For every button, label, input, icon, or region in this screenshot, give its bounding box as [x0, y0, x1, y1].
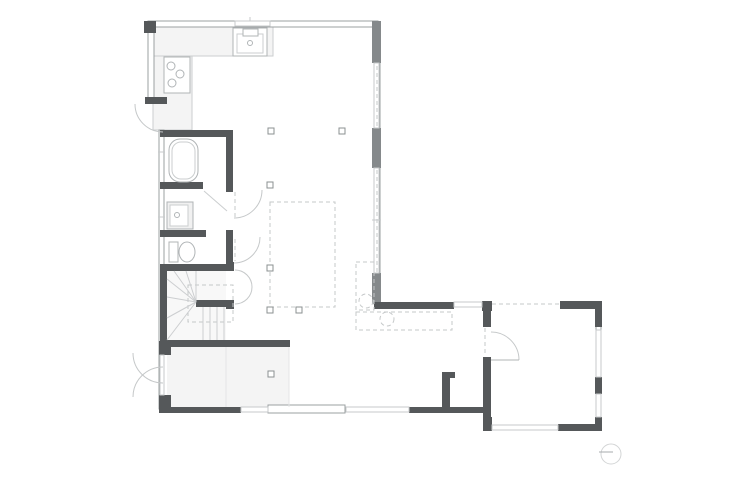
column-marker — [267, 182, 273, 188]
dashed-counter-bottom — [356, 312, 452, 330]
wall-pier — [372, 273, 381, 304]
floor-plan-page — [0, 0, 750, 489]
window — [454, 302, 482, 307]
wall-bottom-a — [159, 407, 241, 413]
corner-pier — [144, 21, 156, 33]
toilet-door-arc — [234, 237, 260, 263]
stair-wall-bottom — [160, 340, 290, 347]
room-pier-ne — [595, 301, 602, 327]
dashed-fixture-circle — [359, 294, 373, 308]
room-wall-left-upper — [483, 309, 491, 327]
dashed-fixture-circle — [380, 312, 394, 326]
wall-stub — [442, 372, 450, 413]
toilet-bowl — [179, 242, 195, 262]
void-outline-dashed — [270, 202, 335, 307]
north-symbol — [601, 444, 621, 464]
closet-door-arc — [235, 287, 252, 304]
stair-wall-left — [160, 264, 167, 347]
floor-plan-canvas — [0, 0, 750, 489]
wall-pier — [372, 128, 381, 168]
column-marker — [268, 371, 274, 377]
window — [235, 21, 270, 26]
room-wall-bottom — [558, 424, 602, 431]
wing-wall-top — [374, 302, 454, 309]
column-marker — [339, 128, 345, 134]
washroom-door-arc — [234, 190, 262, 218]
bath-wall-top — [160, 130, 233, 137]
window — [492, 425, 558, 430]
stair-wall-top — [160, 264, 233, 271]
stair-landing-wall — [196, 300, 233, 307]
wall-pier — [372, 21, 381, 63]
window — [241, 407, 268, 412]
bath-wall-right — [226, 130, 233, 192]
sliding-door-panel — [268, 405, 345, 413]
toilet-tank — [169, 242, 178, 262]
column-marker — [267, 307, 273, 313]
window — [346, 407, 409, 412]
window — [596, 394, 601, 417]
window — [596, 330, 601, 377]
kitchen-door-cap — [145, 97, 167, 104]
cooktop — [164, 57, 190, 93]
bath-door-line — [204, 191, 227, 211]
column-marker — [268, 128, 274, 134]
closet-pier-top — [226, 262, 234, 271]
wall-stub-notch — [450, 372, 455, 378]
column-marker — [296, 307, 302, 313]
washroom-toilet-wall — [160, 230, 206, 237]
room-door-arc — [491, 332, 519, 360]
window — [160, 355, 164, 395]
dashed-counter-side — [356, 262, 374, 310]
bath-wall-low — [160, 182, 203, 189]
closet-door-arc — [235, 270, 252, 287]
room-pier-sw — [483, 417, 492, 431]
kitchen-faucet — [243, 29, 258, 36]
room-pier-east — [595, 377, 602, 394]
column-marker — [267, 265, 273, 271]
